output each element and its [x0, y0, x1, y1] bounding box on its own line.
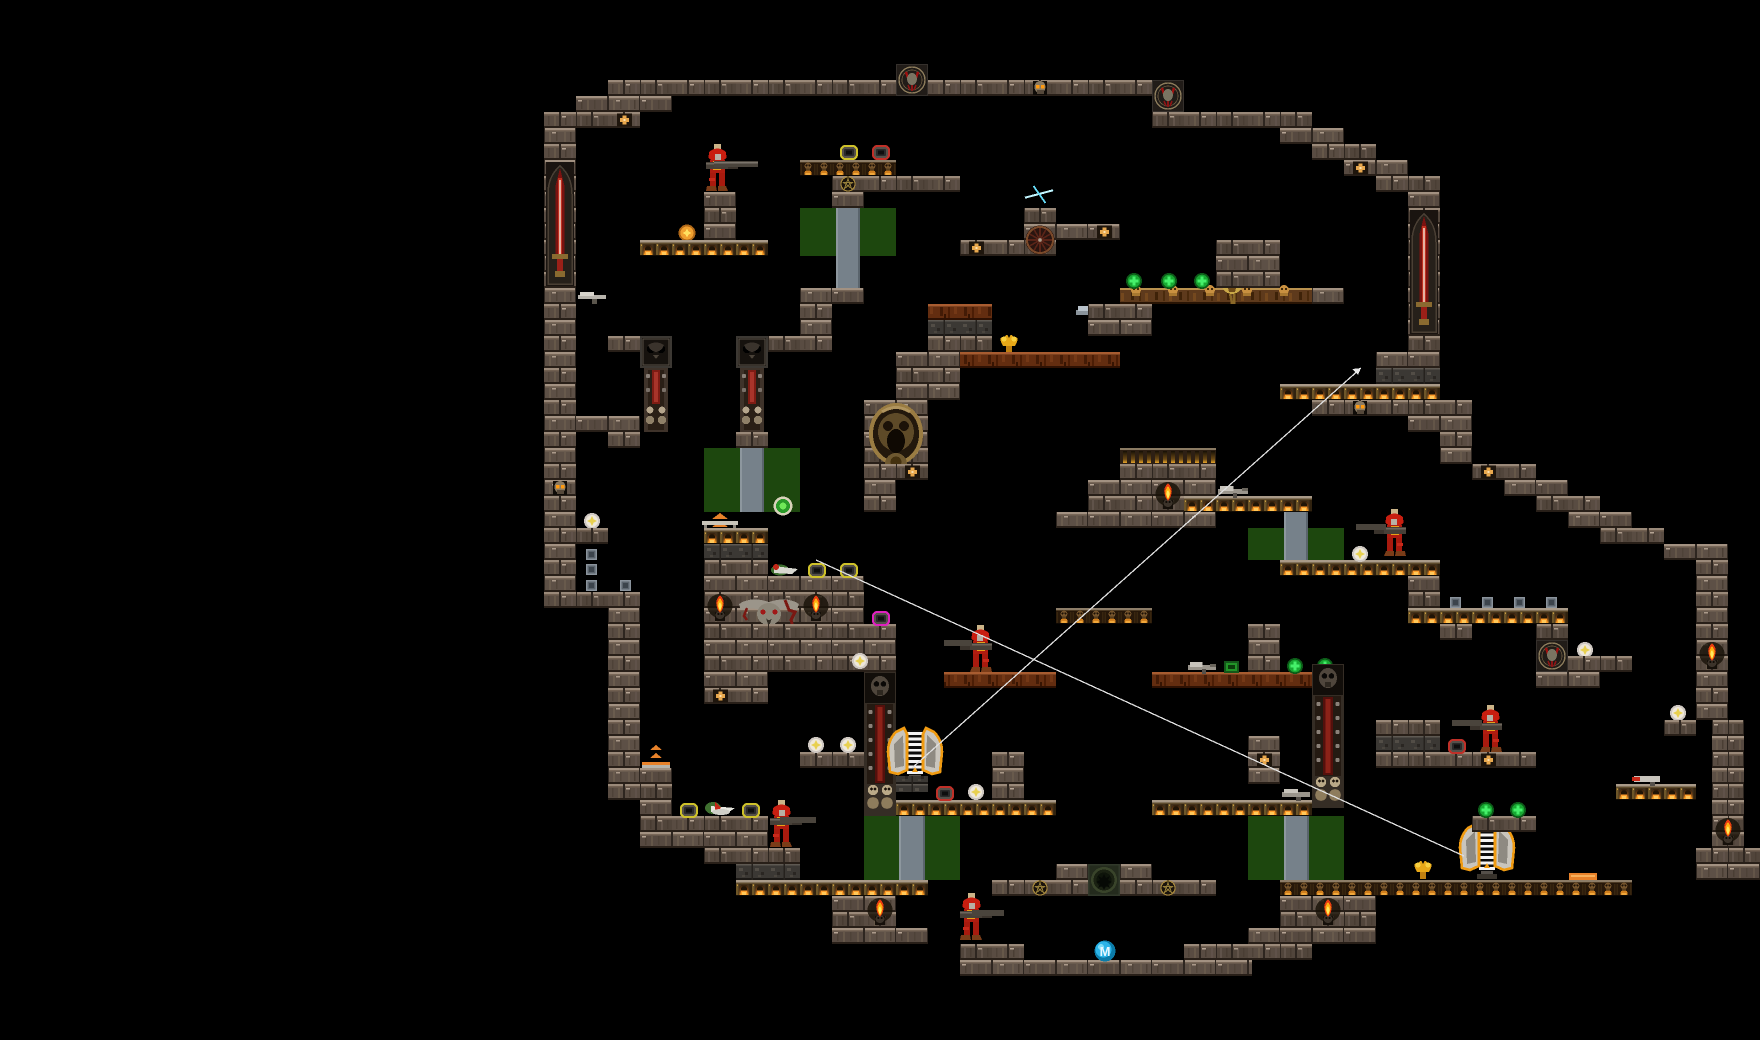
- svg-text:M: M: [1100, 944, 1111, 959]
